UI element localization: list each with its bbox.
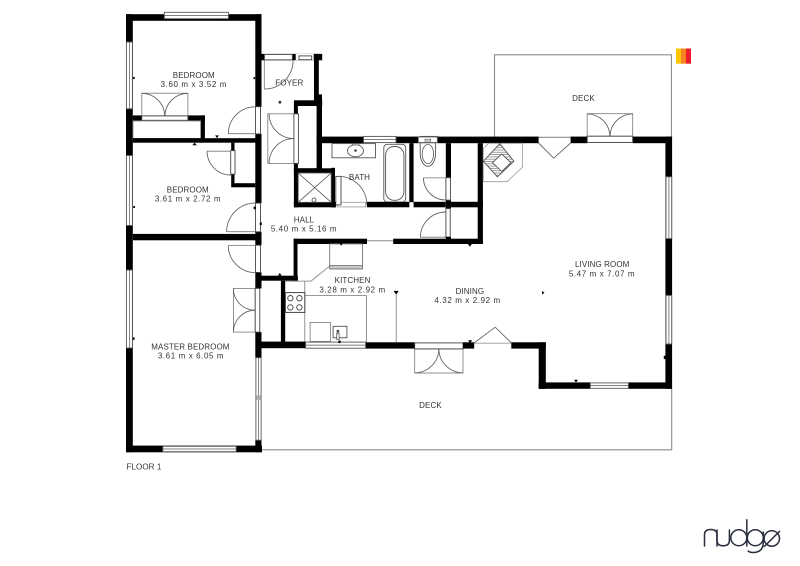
svg-text:FLOOR 1: FLOOR 1 [127,463,162,472]
svg-text:KITCHEN: KITCHEN [335,276,371,285]
svg-text:MASTER BEDROOM: MASTER BEDROOM [151,343,230,352]
svg-text:5.40 m x 5.16 m: 5.40 m x 5.16 m [271,225,337,234]
svg-text:DECK: DECK [572,94,595,103]
svg-text:4.32 m x 2.92 m: 4.32 m x 2.92 m [434,296,500,305]
svg-text:HALL: HALL [294,216,315,225]
svg-text:BEDROOM: BEDROOM [173,71,215,80]
svg-text:BEDROOM: BEDROOM [167,185,209,194]
svg-text:DECK: DECK [419,401,442,410]
svg-text:3.60 m x 3.52 m: 3.60 m x 3.52 m [161,80,227,89]
svg-text:BATH: BATH [349,173,370,182]
svg-text:5.47 m x 7.07 m: 5.47 m x 7.07 m [569,269,635,278]
svg-text:3.61 m x 6.05 m: 3.61 m x 6.05 m [158,352,224,361]
svg-text:LIVING ROOM: LIVING ROOM [575,260,630,269]
svg-text:3.28 m x 2.92 m: 3.28 m x 2.92 m [319,286,385,295]
svg-text:DINING: DINING [456,287,485,296]
svg-text:3.61 m x 2.72 m: 3.61 m x 2.72 m [155,194,221,203]
svg-text:FOYER: FOYER [275,79,303,88]
